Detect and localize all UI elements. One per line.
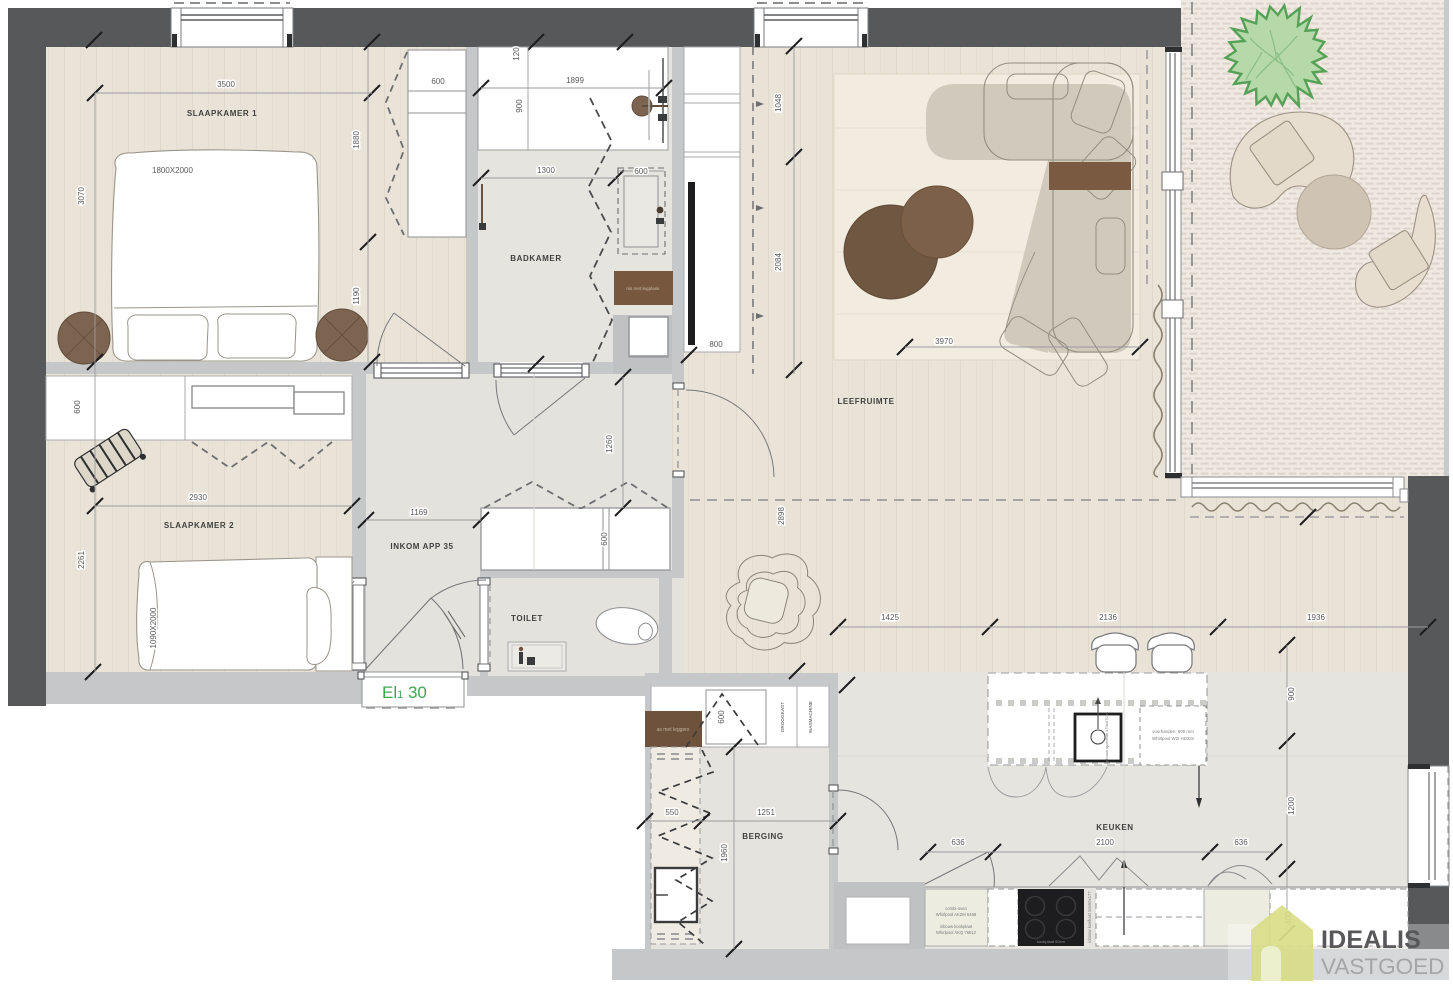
svg-text:kookplaat 60cm: kookplaat 60cm [1037, 939, 1066, 944]
svg-text:1425: 1425 [881, 613, 899, 622]
svg-text:VASTGOED: VASTGOED [1321, 954, 1444, 979]
svg-text:voorhanden: 600 mm: voorhanden: 600 mm [1152, 729, 1194, 734]
svg-text:TOILET: TOILET [511, 614, 543, 623]
svg-text:Whirlpool W2I HD22s: Whirlpool W2I HD22s [1152, 736, 1195, 741]
svg-text:BERGING: BERGING [742, 832, 784, 841]
svg-text:2100: 2100 [1096, 838, 1114, 847]
svg-text:1190: 1190 [352, 287, 361, 305]
svg-text:636: 636 [1234, 838, 1248, 847]
svg-text:El1 30: El1 30 [382, 683, 427, 702]
svg-text:1960: 1960 [720, 844, 729, 862]
svg-text:Whirlpool AKZM 5458: Whirlpool AKZM 5458 [936, 912, 977, 917]
svg-text:600: 600 [717, 710, 726, 724]
svg-text:600: 600 [73, 400, 82, 414]
svg-text:1300: 1300 [537, 166, 555, 175]
svg-text:3970: 3970 [935, 337, 953, 346]
svg-text:inbouw koelkast 54x60x177: inbouw koelkast 54x60x177 [1087, 891, 1092, 943]
svg-text:BADKAMER: BADKAMER [510, 254, 561, 263]
svg-text:2261: 2261 [77, 551, 86, 569]
svg-text:LEEFRUIMTE: LEEFRUIMTE [837, 397, 894, 406]
svg-text:1899: 1899 [566, 76, 584, 85]
svg-text:1936: 1936 [1307, 613, 1325, 622]
svg-text:KEUKEN: KEUKEN [1096, 823, 1133, 832]
svg-text:2898: 2898 [777, 507, 786, 525]
svg-text:SLAAPKAMER 2: SLAAPKAMER 2 [164, 521, 234, 530]
svg-text:1090X2000: 1090X2000 [149, 607, 158, 648]
svg-text:opbouw spoelbak 470x470 m: opbouw spoelbak 470x470 m [1104, 711, 1109, 764]
svg-text:120: 120 [512, 47, 521, 61]
svg-text:inbouw kookplaat: inbouw kookplaat [940, 924, 973, 929]
svg-text:WASMACHINE: WASMACHINE [808, 701, 813, 733]
svg-text:1251: 1251 [757, 808, 775, 817]
svg-text:550: 550 [665, 808, 679, 817]
svg-text:600: 600 [431, 77, 445, 86]
svg-text:1200: 1200 [1287, 797, 1296, 815]
svg-text:INKOM APP 35: INKOM APP 35 [390, 542, 453, 551]
svg-text:1800X2000: 1800X2000 [152, 166, 193, 175]
svg-text:636: 636 [951, 838, 965, 847]
svg-text:800: 800 [709, 340, 723, 349]
svg-text:nis met legplank: nis met legplank [626, 286, 660, 291]
svg-text:600: 600 [600, 532, 609, 546]
svg-text:1260: 1260 [605, 435, 614, 453]
svg-text:3500: 3500 [217, 80, 235, 89]
svg-text:DROOGKAST: DROOGKAST [780, 702, 785, 732]
svg-text:combi-oven: combi-oven [945, 906, 967, 911]
svg-text:as met leggers: as met leggers [657, 727, 690, 733]
svg-text:900: 900 [1287, 687, 1296, 701]
svg-text:SLAAPKAMER 1: SLAAPKAMER 1 [187, 109, 257, 118]
svg-text:3070: 3070 [77, 187, 86, 205]
svg-text:1169: 1169 [410, 508, 428, 517]
svg-text:1048: 1048 [774, 94, 783, 112]
svg-text:1880: 1880 [352, 131, 361, 149]
svg-text:600: 600 [634, 167, 648, 176]
svg-text:Whirlpool AKQ 76512: Whirlpool AKQ 76512 [936, 930, 977, 935]
svg-text:2136: 2136 [1099, 613, 1117, 622]
svg-text:2084: 2084 [774, 253, 783, 271]
svg-text:2930: 2930 [189, 493, 207, 502]
svg-text:IDEALIS: IDEALIS [1321, 926, 1421, 954]
svg-text:900: 900 [515, 99, 524, 113]
